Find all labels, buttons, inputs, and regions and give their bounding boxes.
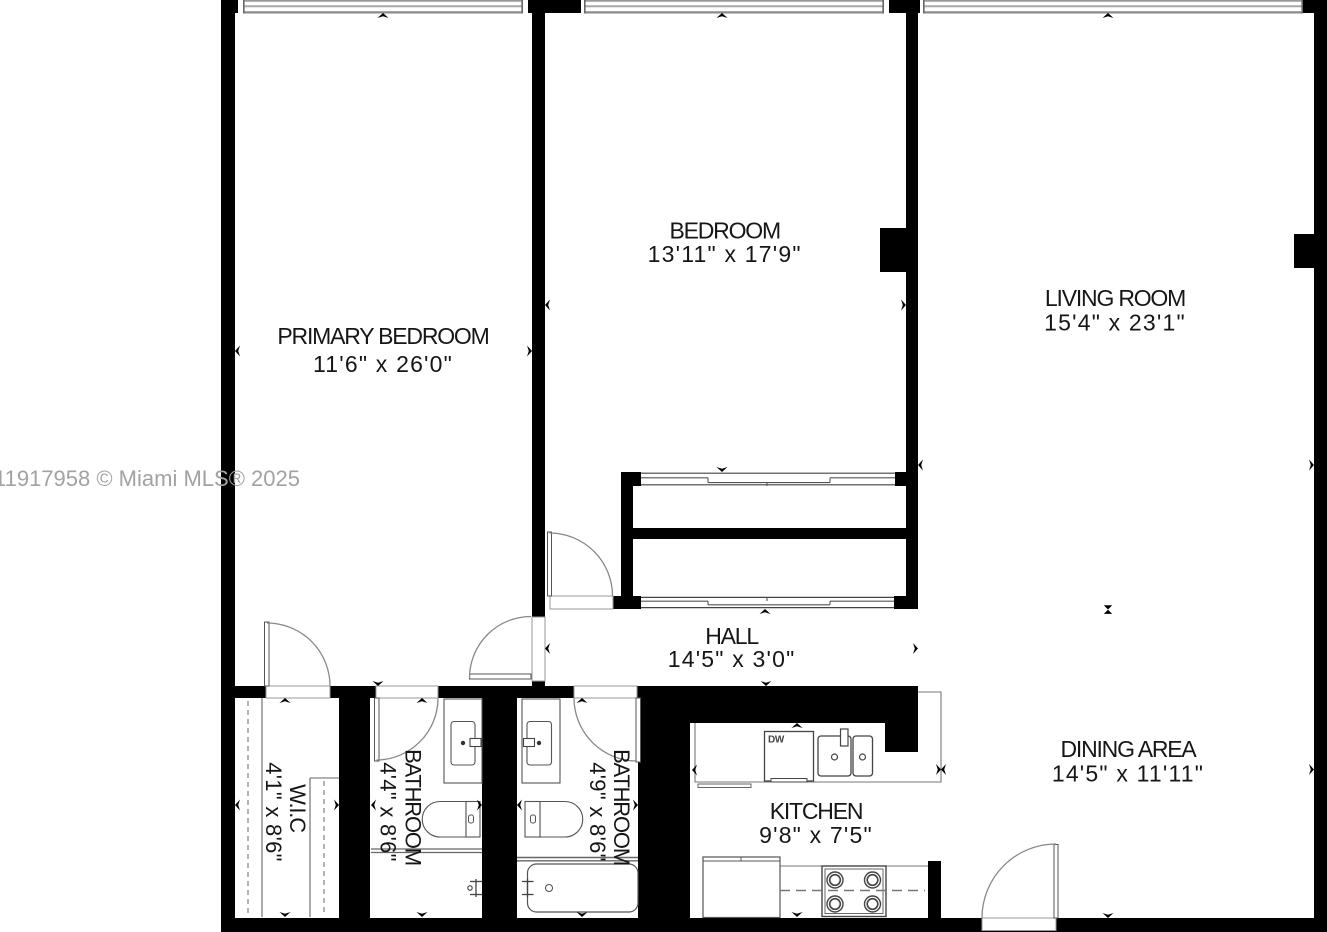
svg-text:11917958 © Miami MLS® 2025: 11917958 © Miami MLS® 2025	[0, 466, 300, 491]
svg-text:4'9" x 8'6": 4'9" x 8'6"	[585, 762, 610, 862]
svg-text:KITCHEN: KITCHEN	[770, 798, 863, 824]
svg-text:14'5" x 11'11": 14'5" x 11'11"	[1052, 761, 1204, 787]
svg-text:DW: DW	[768, 735, 785, 746]
svg-text:4'4" x 8'6": 4'4" x 8'6"	[376, 762, 401, 862]
svg-text:BATHROOM: BATHROOM	[609, 749, 634, 865]
svg-text:9'8" x 7'5": 9'8" x 7'5"	[759, 822, 873, 848]
svg-text:14'5" x 3'0": 14'5" x 3'0"	[668, 646, 796, 672]
svg-text:PRIMARY BEDROOM: PRIMARY BEDROOM	[277, 323, 488, 349]
svg-text:BEDROOM: BEDROOM	[669, 218, 779, 244]
svg-text:DINING AREA: DINING AREA	[1060, 736, 1197, 762]
svg-text:W.I.C: W.I.C	[285, 784, 310, 833]
svg-text:LIVING ROOM: LIVING ROOM	[1045, 285, 1185, 311]
svg-text:BATHROOM: BATHROOM	[401, 749, 426, 865]
svg-text:13'11" x 17'9": 13'11" x 17'9"	[648, 241, 802, 267]
svg-text:15'4" x 23'1": 15'4" x 23'1"	[1044, 310, 1186, 336]
svg-text:4'1" x 8'6": 4'1" x 8'6"	[261, 762, 286, 862]
svg-text:11'6" x 26'0": 11'6" x 26'0"	[313, 351, 453, 377]
